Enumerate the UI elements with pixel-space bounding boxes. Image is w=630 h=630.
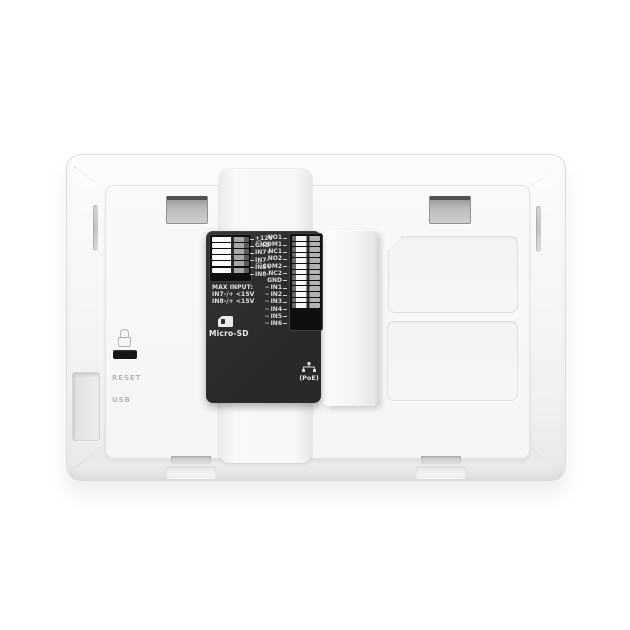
mounting-slot-right [429, 196, 471, 224]
security-lock-slot [113, 350, 137, 359]
terminal [292, 281, 320, 286]
terminal-label-row: NC2 [244, 271, 288, 277]
side-vent-slot-right [536, 206, 541, 252]
circuit-symbol: ⌒ [255, 264, 262, 270]
terminal-label: COM2 [262, 264, 282, 270]
terminal-label: NC2 [268, 271, 282, 277]
bottom-notch-outer-right [416, 466, 466, 478]
terminal [292, 247, 320, 252]
terminal-label: IN4 [271, 307, 282, 313]
wire-tick [283, 323, 287, 324]
sd-card-icon [218, 316, 233, 327]
terminal-label: COM1 [262, 242, 282, 248]
io-terminal-block [290, 234, 322, 330]
reset-label: RESET [112, 374, 141, 382]
bottom-notch-outer-left [166, 466, 216, 478]
max-input-title: MAX INPUT: [212, 284, 254, 291]
circuit-symbol: ~ [264, 314, 271, 320]
sd-card-contact [221, 319, 225, 324]
terminal-label: IN2 [271, 292, 282, 298]
mounting-slot-left [166, 196, 208, 224]
terminal [292, 242, 320, 247]
wire-tick [283, 316, 287, 317]
terminal [292, 303, 320, 308]
wire-tick [283, 280, 287, 281]
circuit-symbol: ⌒ [255, 242, 262, 248]
terminal-label-row: ⌒ COM2 [244, 264, 288, 270]
terminal [292, 298, 320, 303]
bevel-seam-top-left [73, 166, 109, 193]
wire-tick [283, 266, 287, 267]
io-connector-module: +12V GND IN7+ IN7- [206, 231, 321, 403]
circuit-symbol: ~ [264, 307, 271, 313]
terminal-label: IN5 [271, 314, 282, 320]
terminal-label-row: ~ IN5 [244, 314, 288, 320]
wire-tick [283, 302, 287, 303]
terminal-label: NO2 [268, 256, 282, 262]
wire-tick [283, 238, 287, 239]
circuit-symbol: ~ [264, 292, 271, 298]
terminal [292, 258, 320, 263]
terminal [292, 286, 320, 291]
label-recess-top [388, 236, 518, 313]
terminal-label-row: NO2 [244, 256, 288, 262]
terminal [292, 275, 320, 280]
side-vent-slot-left [93, 205, 98, 251]
wire-tick [283, 309, 287, 310]
micro-sd-label: Micro-SD [209, 329, 249, 338]
circuit-symbol: ~ [264, 321, 271, 327]
usb-label: USB [112, 396, 131, 404]
wire-tick [283, 288, 287, 289]
terminal-label: IN6 [271, 321, 282, 327]
terminal [292, 292, 320, 297]
terminal-label-row: ⌒ COM1 [244, 242, 288, 248]
max-input-line1: IN7-/+ <15V [212, 291, 254, 298]
terminal-label-row: NC1 [244, 249, 288, 255]
wire-tick [283, 245, 287, 246]
terminal-label: NC1 [268, 249, 282, 255]
lock-body [118, 337, 131, 347]
circuit-symbol: ~ [264, 299, 271, 305]
io-terminal-labels: NO1 ⌒ COM1 NC1 [244, 235, 288, 327]
bottom-notch-inner-right [421, 456, 461, 464]
wire-tick [283, 273, 287, 274]
lock-icon [118, 329, 131, 345]
terminal-label: IN3 [271, 299, 282, 305]
side-port-cutout [72, 372, 100, 441]
bottom-notch-inner-left [171, 456, 211, 464]
terminal-label-row: ~ IN6 [244, 321, 288, 327]
device-back-shell: RESET USB +12V GND [66, 154, 566, 481]
wire-tick [283, 252, 287, 253]
terminal-label-row: NO1 [244, 235, 288, 241]
max-input-line2: IN8-/+ <15V [212, 298, 254, 305]
product-photo-background: RESET USB +12V GND [0, 0, 630, 630]
label-recess-bottom [387, 321, 518, 401]
max-input-note: MAX INPUT: IN7-/+ <15V IN8-/+ <15V [212, 284, 254, 305]
ethernet-icon [302, 362, 316, 372]
mounting-bracket-wing [323, 230, 378, 406]
terminal-label: NO1 [268, 235, 282, 241]
circuit-symbol: ~ [264, 285, 271, 291]
terminal [292, 253, 320, 258]
terminal-label: GND [267, 278, 282, 284]
lock-shackle [120, 329, 129, 337]
terminal [292, 236, 320, 241]
terminal-label-row: ~ IN4 [244, 307, 288, 313]
wire-tick [283, 259, 287, 260]
terminal-label: IN1 [271, 285, 282, 291]
terminal [292, 264, 320, 269]
poe-label: (PoE) [293, 374, 325, 382]
wire-tick [283, 295, 287, 296]
terminal [292, 270, 320, 275]
